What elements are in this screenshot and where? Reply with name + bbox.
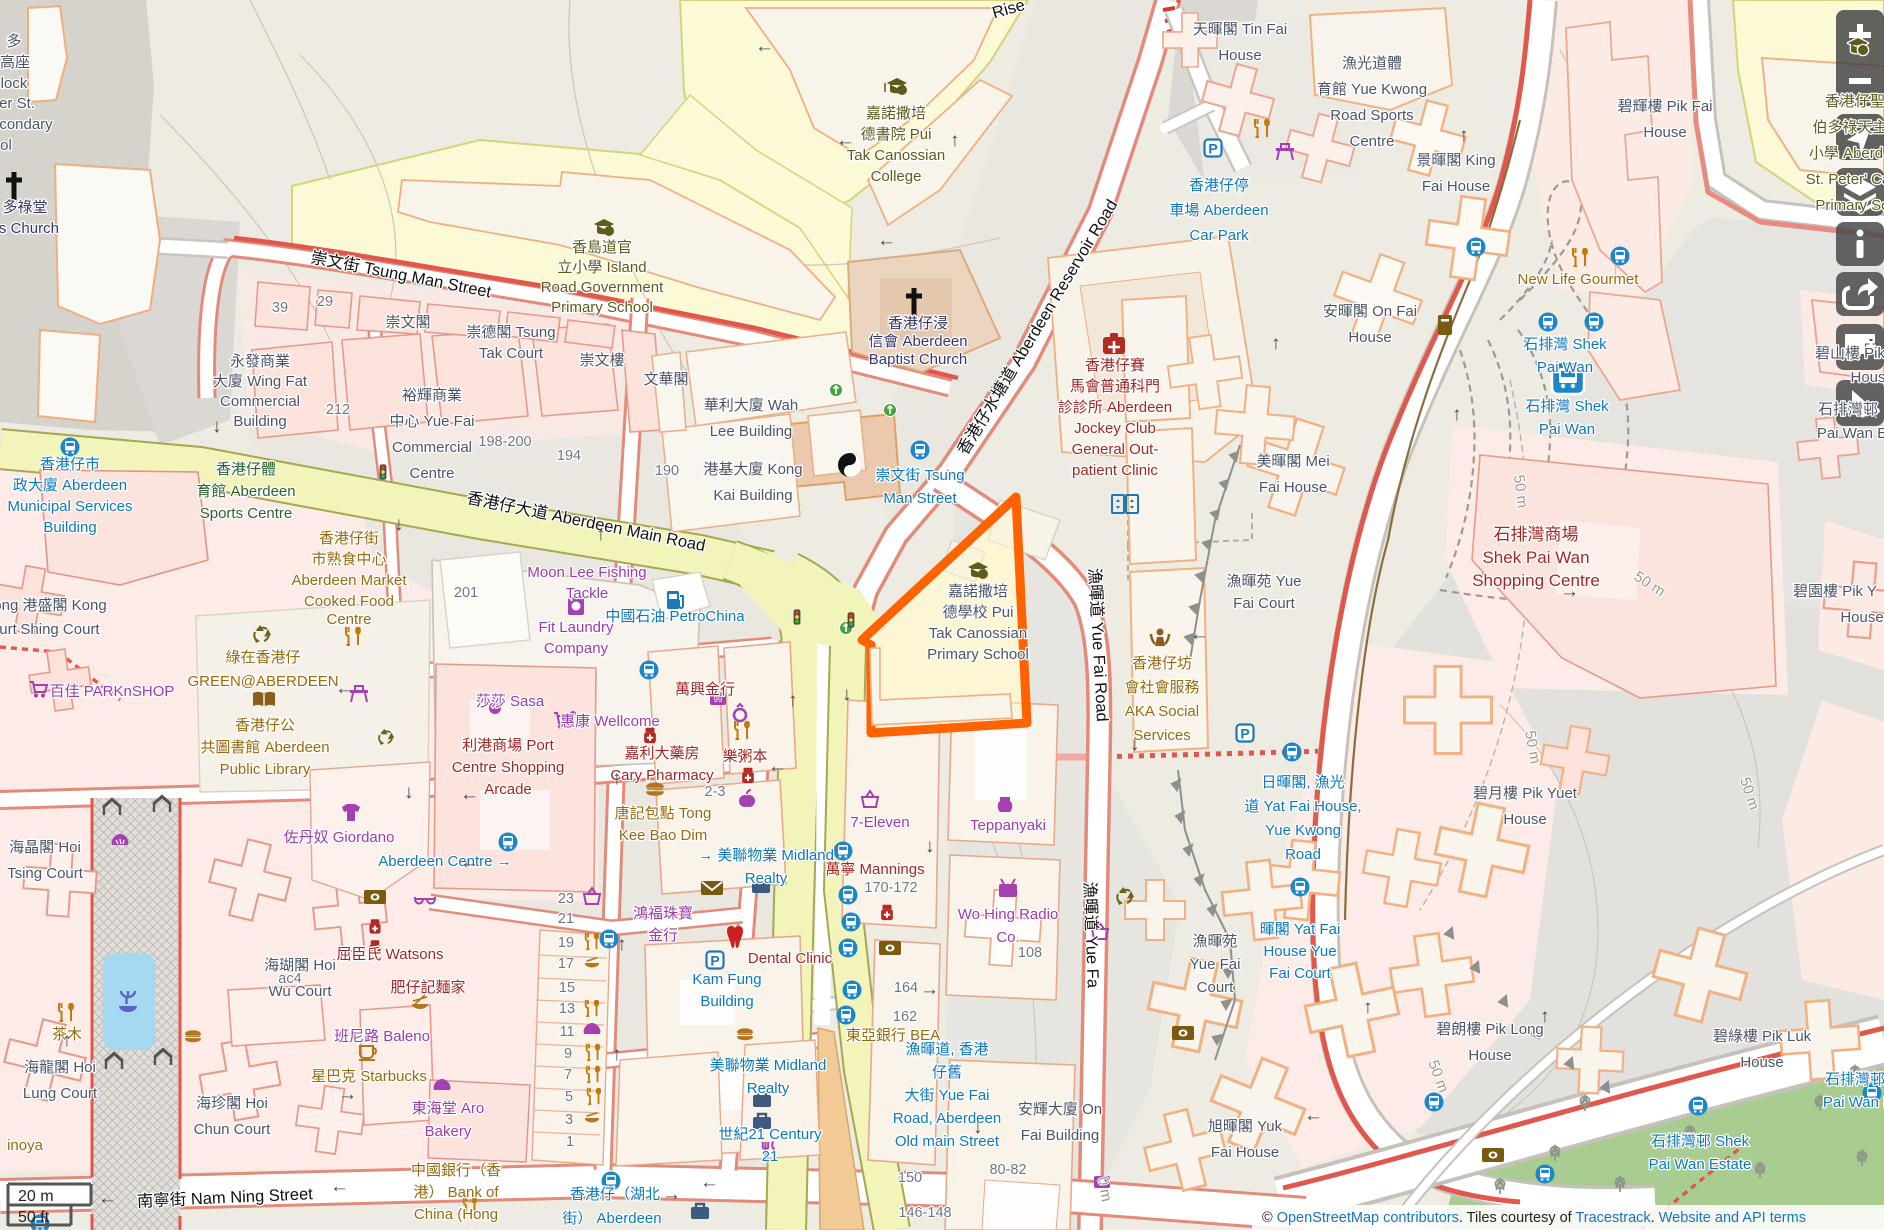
svg-text:Pai Wan: Pai Wan [1537, 359, 1593, 376]
svg-text:碧輝樓 Pik Fai: 碧輝樓 Pik Fai [1617, 98, 1712, 115]
svg-text:Kee Bao Dim: Kee Bao Dim [619, 827, 707, 844]
svg-text:石排灣邨: 石排灣邨 [1825, 1071, 1884, 1088]
svg-text:萬興金行: 萬興金行 [675, 681, 735, 698]
svg-text:164: 164 [894, 980, 918, 996]
svg-text:↑: ↑ [596, 524, 606, 545]
svg-text:↓: ↓ [404, 782, 414, 803]
svg-text:Baptist Church: Baptist Church [869, 351, 967, 368]
svg-text:嘉利大藥房: 嘉利大藥房 [624, 745, 699, 762]
svg-text:Cooked Food: Cooked Food [304, 593, 394, 610]
svg-text:育館 Aberdeen: 育館 Aberdeen [196, 483, 295, 500]
svg-text:Tackle: Tackle [566, 585, 609, 602]
svg-text:150: 150 [898, 1170, 922, 1186]
svg-text:Building: Building [700, 993, 753, 1010]
svg-text:General Out-: General Out- [1072, 441, 1159, 458]
svg-text:萬寧 Mannings: 萬寧 Mannings [825, 861, 924, 878]
svg-text:146-148: 146-148 [898, 1205, 951, 1221]
svg-text:碧朗樓 Pik Long: 碧朗樓 Pik Long [1436, 1021, 1544, 1038]
svg-text:↓: ↓ [394, 514, 404, 535]
svg-text:1: 1 [566, 1134, 574, 1150]
svg-text:香港仔街: 香港仔街 [319, 530, 379, 547]
svg-text:百佳 PARKnSHOP: 百佳 PARKnSHOP [50, 683, 175, 700]
svg-text:莎莎 Sasa: 莎莎 Sasa [476, 693, 545, 710]
svg-text:裕輝商業: 裕輝商業 [402, 387, 462, 404]
svg-text:Fit Laundry: Fit Laundry [538, 619, 614, 636]
svg-text:香島道官: 香島道官 [572, 239, 632, 256]
svg-text:香港仔公: 香港仔公 [235, 717, 295, 734]
svg-text:→: → [662, 1184, 681, 1205]
svg-text:212: 212 [326, 402, 350, 418]
svg-text:永發商業: 永發商業 [230, 353, 290, 370]
svg-text:Fai House: Fai House [1259, 479, 1327, 496]
svg-text:漁暉苑: 漁暉苑 [1192, 933, 1237, 950]
svg-text:Tak Court: Tak Court [479, 345, 544, 362]
svg-text:惠康 Wellcome: 惠康 Wellcome [560, 713, 660, 730]
svg-text:Teppanyaki: Teppanyaki [970, 817, 1046, 834]
svg-text:© OpenStreetMap contributors.: © OpenStreetMap contributors. Tiles cour… [1262, 1210, 1806, 1226]
svg-text:←: ← [877, 230, 896, 251]
svg-text:11: 11 [559, 1024, 574, 1040]
svg-text:21: 21 [558, 911, 574, 927]
svg-text:香港仔停: 香港仔停 [1189, 177, 1249, 194]
svg-text:碧園樓 Pik Y: 碧園樓 Pik Y [1793, 583, 1877, 600]
svg-text:Realty: Realty [745, 870, 788, 887]
svg-text:Man Street: Man Street [883, 490, 957, 507]
svg-text:St. Peter' Ca: St. Peter' Ca [1806, 171, 1884, 188]
svg-text:17: 17 [558, 956, 574, 972]
svg-text:Commercial: Commercial [392, 439, 472, 456]
svg-text:Cary Pharmacy: Cary Pharmacy [610, 767, 714, 784]
svg-text:13: 13 [559, 1001, 575, 1017]
svg-text:天暉閣 Tin Fai: 天暉閣 Tin Fai [1193, 21, 1287, 38]
svg-text:Primary Sc: Primary Sc [1815, 197, 1884, 214]
svg-text:樂粥本: 樂粥本 [722, 748, 767, 765]
svg-text:嘉諾撒培: 嘉諾撒培 [866, 105, 926, 122]
svg-text:育館 Yue Kwong: 育館 Yue Kwong [1317, 81, 1427, 98]
svg-text:Company: Company [544, 640, 609, 657]
svg-text:House: House [1468, 1047, 1511, 1064]
svg-text:班尼路 Baleno: 班尼路 Baleno [334, 1028, 430, 1045]
svg-text:House: House [1348, 329, 1391, 346]
svg-text:海珍閣 Hoi: 海珍閣 Hoi [196, 1095, 268, 1112]
svg-text:er St.: er St. [0, 95, 35, 112]
svg-text:20 m: 20 m [18, 1188, 54, 1205]
svg-text:港） Bank of: 港） Bank of [413, 1184, 499, 1201]
svg-text:Road Sports: Road Sports [1330, 107, 1413, 124]
svg-text:金行: 金行 [648, 927, 678, 944]
svg-text:Road Government: Road Government [541, 279, 664, 296]
svg-text:House: House [1643, 124, 1686, 141]
svg-text:伯多祿天主: 伯多祿天主 [1812, 119, 1884, 136]
svg-text:162: 162 [893, 1009, 917, 1025]
svg-text:↑: ↑ [617, 934, 627, 955]
svg-text:港基大廈 Kong: 港基大廈 Kong [703, 460, 802, 478]
svg-text:Building: Building [233, 413, 286, 430]
svg-text:↓: ↓ [842, 684, 852, 705]
svg-text:漁暉道, 香港: 漁暉道, 香港 [905, 1041, 988, 1058]
svg-text:condary: condary [0, 116, 53, 133]
svg-text:←: ← [1190, 624, 1209, 645]
svg-text:共圖書館 Aberdeen: 共圖書館 Aberdeen [200, 739, 329, 756]
svg-text:碧月樓 Pik Yuet: 碧月樓 Pik Yuet [1473, 785, 1578, 802]
svg-text:House: House [1218, 47, 1261, 64]
svg-text:Tak Canossian: Tak Canossian [847, 147, 945, 164]
svg-text:星巴克 Starbucks: 星巴克 Starbucks [311, 1068, 427, 1085]
svg-text:Yue Fai: Yue Fai [1190, 956, 1241, 973]
svg-text:Moon Lee Fishing: Moon Lee Fishing [527, 564, 646, 581]
svg-text:香港仔體: 香港仔體 [216, 461, 276, 478]
svg-text:Hous: Hous [1850, 369, 1884, 386]
svg-text:立小學 Island: 立小學 Island [557, 258, 646, 276]
svg-text:3: 3 [565, 1112, 573, 1128]
svg-text:Bakery: Bakery [425, 1123, 472, 1140]
svg-text:Co.: Co. [996, 929, 1019, 946]
svg-text:→: → [1560, 581, 1579, 602]
svg-text:香港仔坊: 香港仔坊 [1132, 655, 1192, 672]
svg-text:7: 7 [564, 1067, 572, 1083]
svg-text:↑: ↑ [1363, 997, 1373, 1018]
svg-text:Tsing Court: Tsing Court [7, 865, 84, 882]
svg-text:19: 19 [558, 935, 574, 951]
svg-text:世紀21 Century: 世紀21 Century [718, 1126, 822, 1143]
svg-text:23: 23 [558, 891, 574, 907]
svg-text:鴻福珠寶: 鴻福珠寶 [633, 904, 693, 922]
svg-text:Centre: Centre [326, 611, 371, 628]
svg-text:利港商場 Port: 利港商場 Port [462, 737, 555, 754]
svg-text:石排灣 Shek: 石排灣 Shek [1525, 398, 1609, 415]
svg-text:政大廈 Aberdeen: 政大廈 Aberdeen [13, 476, 127, 494]
svg-text:Lee Building: Lee Building [710, 423, 793, 440]
svg-text:College: College [871, 168, 922, 185]
svg-text:香港仔聖: 香港仔聖 [1825, 93, 1884, 110]
svg-text:170-172: 170-172 [864, 880, 917, 896]
svg-text:日暉閣, 漁光: 日暉閣, 漁光 [1261, 774, 1344, 791]
svg-text:lock: lock [1, 75, 28, 92]
svg-text:東海堂 Aro: 東海堂 Aro [412, 1100, 485, 1117]
svg-text:Commercial: Commercial [220, 393, 300, 410]
svg-text:↑: ↑ [62, 1030, 72, 1051]
svg-text:Primary School: Primary School [551, 299, 653, 316]
svg-text:House Yue: House Yue [1263, 943, 1336, 960]
svg-text:↓: ↓ [212, 416, 222, 437]
svg-text:文華閣: 文華閣 [643, 371, 688, 388]
svg-text:Public Library: Public Library [220, 761, 311, 778]
svg-text:190: 190 [655, 463, 679, 479]
svg-text:會社會服務: 會社會服務 [1124, 679, 1199, 696]
svg-text:Car Park: Car Park [1189, 227, 1249, 244]
svg-text:香港仔浸: 香港仔浸 [888, 315, 948, 332]
svg-text:Sports Centre: Sports Centre [200, 505, 293, 522]
svg-text:Shing Court: Shing Court [20, 621, 100, 638]
svg-text:GREEN@ABERDEEN: GREEN@ABERDEEN [187, 673, 338, 690]
svg-text:崇文樓: 崇文樓 [579, 352, 624, 369]
svg-text:House: House [1740, 1054, 1783, 1071]
svg-text:Primary School: Primary School [927, 646, 1029, 663]
svg-text:Centre Shopping: Centre Shopping [452, 759, 565, 776]
svg-text:Centre: Centre [1349, 133, 1394, 150]
svg-text:ac4: ac4 [278, 971, 301, 987]
svg-text:Chun Court: Chun Court [194, 1121, 272, 1138]
svg-text:Municipal Services: Municipal Services [7, 498, 132, 515]
svg-text:Kai Building: Kai Building [713, 487, 792, 504]
svg-text:綠在香港仔: 綠在香港仔 [225, 649, 300, 666]
svg-text:Dental Clinic: Dental Clinic [748, 950, 833, 967]
svg-text:中國銀行（香: 中國銀行（香 [411, 1162, 501, 1179]
svg-text:↑: ↑ [1452, 404, 1462, 425]
svg-text:Centre: Centre [409, 465, 454, 482]
svg-text:診診所 Aberdeen: 診診所 Aberdeen [1058, 399, 1172, 416]
svg-text:安暉閣 On Fai: 安暉閣 On Fai [1323, 303, 1417, 320]
svg-text:中心 Yue Fai: 中心 Yue Fai [389, 413, 474, 430]
svg-text:石排灣商場: 石排灣商場 [1494, 525, 1579, 544]
svg-text:←: ← [768, 756, 787, 777]
svg-text:←: ← [460, 784, 479, 805]
svg-text:漁暉苑 Yue: 漁暉苑 Yue [1226, 573, 1301, 590]
svg-text:嘉諾撒培: 嘉諾撒培 [948, 583, 1008, 600]
svg-text:↑: ↑ [950, 130, 960, 151]
svg-text:↑: ↑ [1540, 1006, 1550, 1027]
svg-text:香港仔賽: 香港仔賽 [1085, 357, 1145, 374]
svg-text:多祿堂: 多祿堂 [2, 199, 47, 216]
svg-text:194: 194 [557, 448, 581, 464]
svg-text:漁暉道 Yue Fa: 漁暉道 Yue Fa [1080, 881, 1103, 989]
svg-text:↑: ↑ [788, 690, 798, 711]
svg-text:美聯物業 Midland: 美聯物業 Midland [710, 1057, 827, 1074]
svg-text:Building: Building [43, 519, 96, 536]
svg-text:崇文閣: 崇文閣 [385, 314, 430, 331]
svg-text:Road, Aberdeen: Road, Aberdeen [893, 1110, 1001, 1127]
svg-text:海晶閣 Hoi: 海晶閣 Hoi [9, 839, 81, 856]
svg-text:中國石油 PetroChina: 中國石油 PetroChina [605, 608, 745, 625]
svg-text:201: 201 [454, 585, 478, 601]
svg-text:Tak Canossian: Tak Canossian [929, 625, 1027, 642]
svg-text:Old main Street: Old main Street [895, 1133, 1000, 1150]
svg-text:大廈 Wing Fat: 大廈 Wing Fat [213, 372, 308, 390]
svg-text:15: 15 [559, 980, 575, 996]
svg-text:街） Aberdeen: 街） Aberdeen [562, 1210, 661, 1227]
svg-text:美暉閣 Mei: 美暉閣 Mei [1256, 453, 1329, 470]
svg-text:Pai Wan Estate: Pai Wan Estate [1649, 1156, 1752, 1173]
svg-text:108: 108 [1018, 945, 1042, 961]
svg-text:patient Clinic: patient Clinic [1072, 462, 1158, 479]
svg-text:小學 Aberd: 小學 Aberd [1809, 144, 1883, 162]
svg-text:→ 美聯物業 Midland: → 美聯物業 Midland [698, 847, 834, 864]
svg-text:Services: Services [1133, 727, 1191, 744]
svg-text:香港仔（湖北: 香港仔（湖北 [570, 1186, 660, 1203]
svg-text:Fai House: Fai House [1211, 1144, 1279, 1161]
svg-text:Shopping Centre: Shopping Centre [1472, 571, 1600, 590]
svg-text:ol: ol [0, 137, 12, 154]
svg-text:↑: ↑ [1459, 125, 1469, 146]
svg-text:7-Eleven: 7-Eleven [850, 814, 909, 831]
svg-text:海龍閣 Hoi: 海龍閣 Hoi [24, 1059, 96, 1076]
svg-text:→: → [920, 979, 939, 1000]
svg-text:China (Hong: China (Hong [414, 1206, 498, 1223]
svg-text:崇德閣 Tsung: 崇德閣 Tsung [466, 323, 555, 341]
svg-text:←: ← [755, 36, 774, 57]
svg-text:50 ft: 50 ft [18, 1209, 50, 1226]
svg-text:Wo Hing Radio: Wo Hing Radio [958, 906, 1059, 923]
svg-text:→: → [338, 1084, 357, 1105]
svg-text:信會 Aberdeen: 信會 Aberdeen [868, 333, 967, 350]
svg-text:道 Yat Fai House,: 道 Yat Fai House, [1244, 798, 1361, 815]
svg-text:暉閣 Yat Fai: 暉閣 Yat Fai [1260, 921, 1341, 938]
svg-text:高座: 高座 [0, 54, 30, 71]
svg-text:↑: ↑ [612, 768, 622, 789]
svg-text:↓: ↓ [1130, 734, 1140, 755]
svg-text:←: ← [335, 678, 354, 699]
svg-text:ong 港盛閣 Kong: ong 港盛閣 Kong [0, 597, 107, 614]
svg-text:Fai Building: Fai Building [1021, 1127, 1099, 1144]
svg-text:urt: urt [0, 621, 18, 638]
svg-text:唐記包點 Tong: 唐記包點 Tong [615, 805, 712, 822]
svg-text:80-82: 80-82 [989, 1162, 1026, 1178]
svg-text:安輝大廈 On: 安輝大廈 On [1018, 1100, 1102, 1118]
svg-text:39: 39 [272, 300, 288, 316]
svg-text:New Life Gourmet: New Life Gourmet [1518, 271, 1640, 288]
svg-text:r's Church: r's Church [0, 220, 59, 237]
svg-text:Fai Court: Fai Court [1269, 965, 1332, 982]
svg-text:碧山樓 Pik: 碧山樓 Pik [1815, 345, 1884, 362]
svg-text:Fai House: Fai House [1422, 178, 1490, 195]
svg-text:2-3: 2-3 [705, 784, 726, 800]
svg-text:29: 29 [317, 294, 333, 310]
svg-text:House: House [1503, 811, 1546, 828]
svg-text:Jockey Club: Jockey Club [1074, 420, 1156, 437]
svg-text:↑: ↑ [612, 1044, 622, 1065]
svg-text:House: House [1840, 609, 1883, 626]
svg-text:馬會普通科門: 馬會普通科門 [1070, 378, 1160, 395]
svg-text:市熟食中心: 市熟食中心 [311, 551, 386, 568]
svg-text:Road: Road [1285, 846, 1321, 863]
svg-text:Pai Wan E: Pai Wan E [1817, 425, 1884, 442]
svg-text:德書院 Pui: 德書院 Pui [861, 125, 932, 143]
svg-text:屈臣氏 Watsons: 屈臣氏 Watsons [337, 946, 444, 963]
svg-text:崇文街 Tsung: 崇文街 Tsung [875, 467, 964, 484]
svg-text:佐丹奴 Giordano: 佐丹奴 Giordano [284, 828, 395, 846]
svg-text:多: 多 [6, 33, 21, 50]
svg-text:Yue Kwong: Yue Kwong [1265, 822, 1341, 839]
svg-text:inoya: inoya [7, 1137, 44, 1154]
svg-text:大街 Yue Fai: 大街 Yue Fai [904, 1087, 989, 1104]
svg-text:Pai Wan: Pai Wan [1539, 421, 1595, 438]
svg-text:←: ← [330, 1176, 349, 1197]
svg-text:5: 5 [565, 1089, 573, 1105]
svg-text:漁光道體: 漁光道體 [1342, 55, 1402, 72]
svg-text:←: ← [460, 852, 479, 873]
svg-text:9: 9 [564, 1046, 572, 1062]
svg-text:←: ← [700, 1172, 719, 1193]
svg-text:Lung Court: Lung Court [23, 1085, 98, 1102]
svg-text:Arcade: Arcade [484, 781, 532, 798]
svg-text:景暉閣 King: 景暉閣 King [1416, 152, 1495, 169]
svg-text:↓: ↓ [973, 1117, 983, 1138]
svg-text:Court: Court [1197, 979, 1235, 996]
svg-text:←: ← [98, 1188, 117, 1209]
svg-text:Aberdeen Centre →: Aberdeen Centre → [378, 853, 511, 870]
svg-text:AKA Social: AKA Social [1125, 703, 1199, 720]
svg-text:←: ← [1304, 1105, 1323, 1126]
svg-text:石排灣邨 Shek: 石排灣邨 Shek [1651, 1133, 1750, 1150]
svg-text:←: ← [836, 130, 855, 151]
svg-text:21: 21 [762, 1148, 779, 1165]
svg-text:車場 Aberdeen: 車場 Aberdeen [1169, 202, 1268, 219]
svg-text:華利大廈 Wah: 華利大廈 Wah [704, 396, 798, 414]
svg-text:香港仔市: 香港仔市 [40, 456, 100, 473]
svg-text:Aberdeen Market: Aberdeen Market [291, 572, 407, 589]
svg-text:198-200: 198-200 [478, 434, 531, 450]
svg-text:仔舊: 仔舊 [932, 1064, 962, 1081]
svg-text:Pai Wan E: Pai Wan E [1823, 1094, 1884, 1111]
svg-text:↓: ↓ [925, 836, 935, 857]
svg-text:肥仔記麵家: 肥仔記麵家 [390, 979, 465, 996]
svg-text:碧綠樓 Pik Luk: 碧綠樓 Pik Luk [1713, 1028, 1812, 1045]
svg-text:Fai Court: Fai Court [1233, 595, 1296, 612]
svg-text:Shek Pai Wan: Shek Pai Wan [1482, 548, 1589, 567]
svg-text:Realty: Realty [747, 1080, 790, 1097]
svg-text:石排灣 Shek: 石排灣 Shek [1523, 336, 1607, 353]
svg-text:旭暉閣 Yuk: 旭暉閣 Yuk [1208, 1118, 1283, 1135]
svg-text:德學校 Pui: 德學校 Pui [943, 603, 1014, 621]
svg-text:Kam Fung: Kam Fung [692, 971, 761, 988]
svg-text:↑: ↑ [1271, 333, 1281, 354]
svg-text:石排灣邨: 石排灣邨 [1818, 401, 1878, 418]
